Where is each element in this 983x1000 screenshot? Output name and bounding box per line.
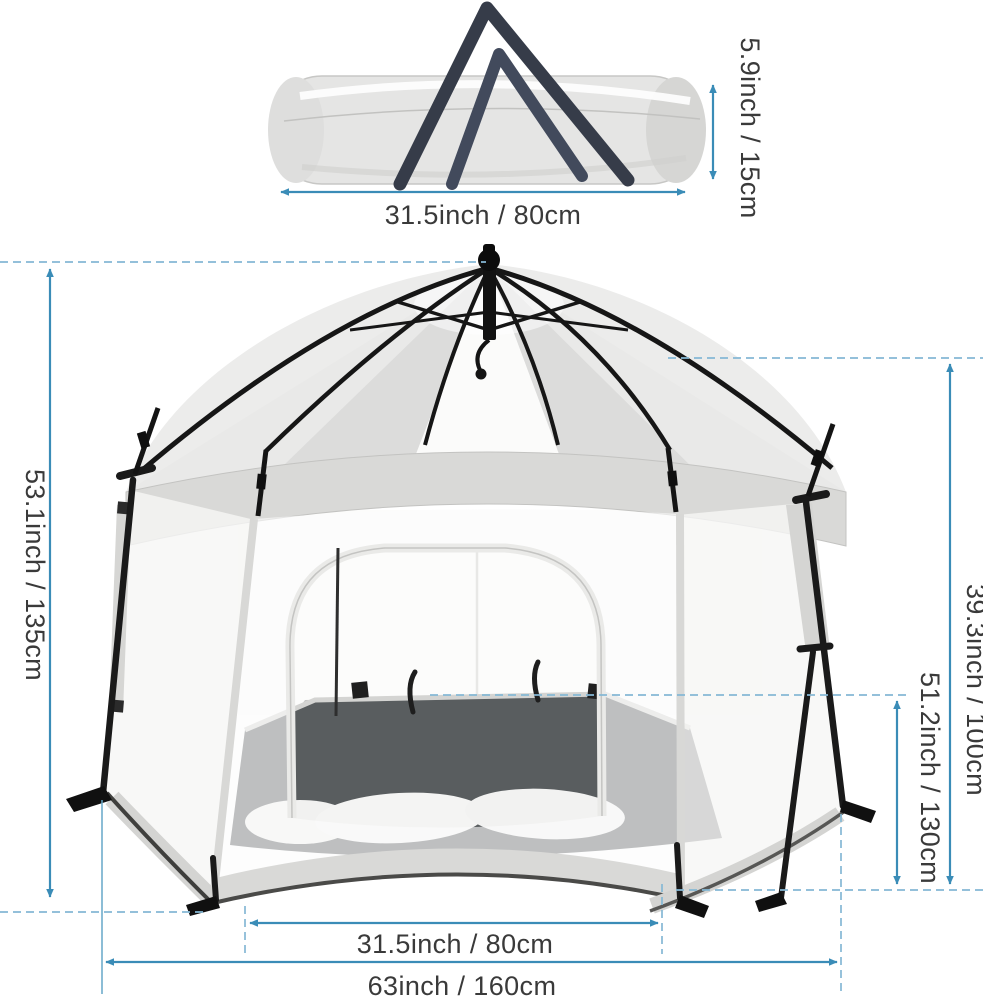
left-wall-strap-bottom (116, 700, 117, 712)
inner-height-label: 51.2inch / 130cm (915, 672, 945, 884)
mid-right-bracket (800, 646, 830, 649)
left-outer-foot (66, 786, 112, 812)
buckle-front-left (256, 474, 267, 490)
tent-height-label: 53.1inch / 135cm (20, 469, 50, 681)
carry-bag-illustration (268, 8, 706, 184)
bag-height-label: 5.9inch / 15cm (735, 37, 765, 218)
mid-right-foot (755, 892, 787, 912)
front-right-edge-binding (680, 514, 681, 897)
buckle-front-right (667, 471, 678, 487)
hub-cord-ring (476, 369, 487, 380)
diagram-canvas: 31.5inch / 80cm 5.9inch / 15cm 53.1inch … (0, 0, 983, 1000)
wall-height-label: 39.3inch / 100cm (961, 584, 983, 796)
front-left-pole (213, 858, 216, 900)
left-wall-strap-top (124, 502, 125, 514)
total-width-label: 63inch / 160cm (368, 971, 557, 1000)
door-zipper (336, 548, 338, 716)
right-outer-foot (840, 800, 876, 823)
hub-top-knob (483, 244, 495, 256)
bag-width-label: 31.5inch / 80cm (385, 200, 582, 230)
door-width-label: 31.5inch / 80cm (357, 929, 554, 959)
floor-corner-tab-left (351, 681, 369, 699)
tent-illustration (66, 244, 876, 918)
product-dimension-diagram: 31.5inch / 80cm 5.9inch / 15cm 53.1inch … (0, 0, 983, 1000)
